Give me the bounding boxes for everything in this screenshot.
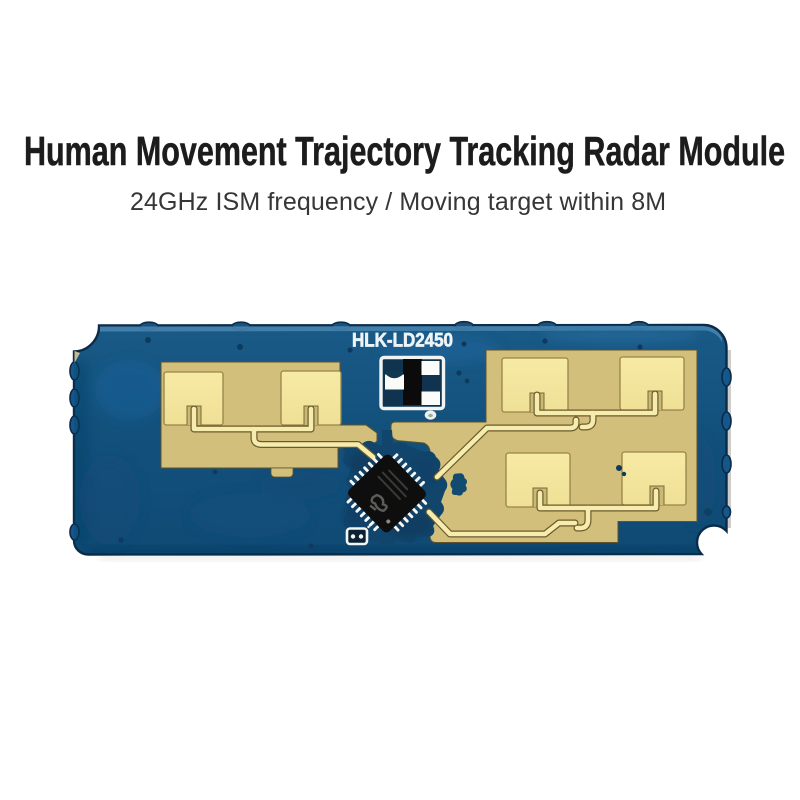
svg-text:HLK-LD2450: HLK-LD2450 bbox=[352, 330, 453, 352]
